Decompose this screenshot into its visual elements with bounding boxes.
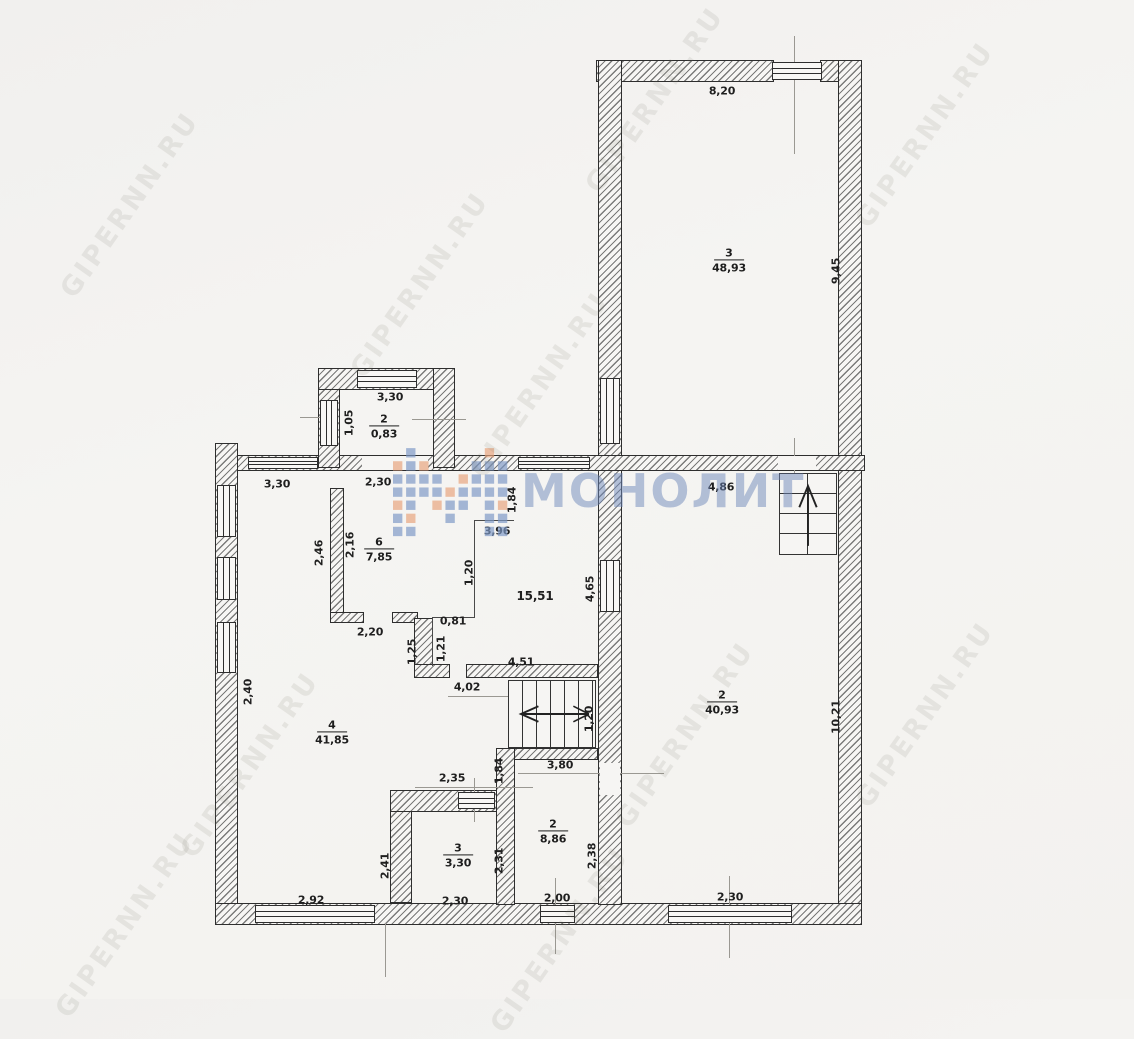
dim-label-380: 3,80 [547, 759, 573, 772]
window [255, 905, 375, 923]
dim-label-402: 4,02 [454, 681, 480, 694]
dim-label-125: 1,25 [406, 639, 419, 665]
dim-label-room6-bottom: 2,20 [357, 626, 383, 639]
window [217, 485, 236, 537]
dim-label-451: 4,51 [508, 656, 534, 669]
dim-label-241: 2,41 [379, 853, 392, 879]
dim-label-top-width: 8,20 [709, 85, 735, 98]
wall-segment [330, 488, 344, 620]
dim-label-smallroom-top: 3,30 [377, 391, 403, 404]
room-label-2-bottom: 2 8,86 [538, 812, 568, 845]
watermark-text: GIPERNN.RU [344, 186, 495, 384]
dim-label-184b: 1,84 [493, 758, 506, 784]
dim-label-231: 2,31 [493, 848, 506, 874]
dim-label-230a: 2,30 [442, 895, 468, 908]
window [772, 62, 822, 80]
dim-label-below-smallroom: 2,30 [365, 476, 391, 489]
dimension-line [412, 419, 466, 420]
dim-label-292: 2,92 [298, 894, 324, 907]
room-label-2-small: 2 0,83 [369, 407, 399, 440]
dim-label-246: 2,46 [313, 540, 326, 566]
floor-plan: 3 48,93 2 40,93 4 41,85 6 7,85 2 0,83 3 … [0, 0, 1134, 999]
window [600, 560, 620, 612]
dim-label-topleft-width: 3,30 [264, 478, 290, 491]
dim-label-081: 0,81 [440, 615, 466, 628]
window [320, 400, 338, 446]
dim-label-240: 2,40 [242, 679, 255, 705]
watermark-text: GIPERNN.RU [49, 826, 200, 1024]
room-label-6: 6 7,85 [364, 530, 394, 563]
monolit-logo-text: МОНОЛИТ [521, 468, 806, 514]
wall-segment [598, 470, 622, 905]
window [668, 905, 792, 923]
room-label-hall: 15,51 [517, 589, 554, 603]
watermark-text: GIPERNN.RU [849, 36, 1000, 234]
dim-label-235: 2,35 [439, 772, 465, 785]
window [600, 378, 620, 444]
door-opening [600, 763, 620, 795]
room-label-3-bottom: 3 3,30 [443, 836, 473, 869]
dim-label-121: 1,21 [435, 636, 448, 662]
window [217, 622, 236, 673]
window [248, 457, 318, 469]
wall-segment [414, 664, 450, 678]
dim-label-216: 2,16 [344, 532, 357, 558]
dim-label-230b: 2,30 [717, 891, 743, 904]
dim-label-1021: 10,21 [830, 700, 843, 734]
room-label-3-top: 3 48,93 [712, 241, 746, 274]
watermark-text: GIPERNN.RU [54, 106, 205, 304]
window [458, 792, 495, 809]
watermark-text: GIPERNN.RU [849, 616, 1000, 814]
partition-line [432, 617, 433, 666]
dim-label-right-height: 9,45 [830, 258, 843, 284]
dimension-line [385, 923, 386, 977]
dim-label-120a: 1,20 [463, 560, 476, 586]
dim-label-105: 1,05 [343, 410, 356, 436]
room-label-4-left: 4 41,85 [315, 713, 349, 746]
dim-label-465: 4,65 [584, 576, 597, 602]
window [217, 557, 236, 600]
wall-segment [330, 612, 364, 623]
dimension-line [794, 36, 795, 154]
watermark-text: GIPERNN.RU [609, 636, 760, 834]
dim-label-120b: 1,20 [583, 706, 596, 732]
